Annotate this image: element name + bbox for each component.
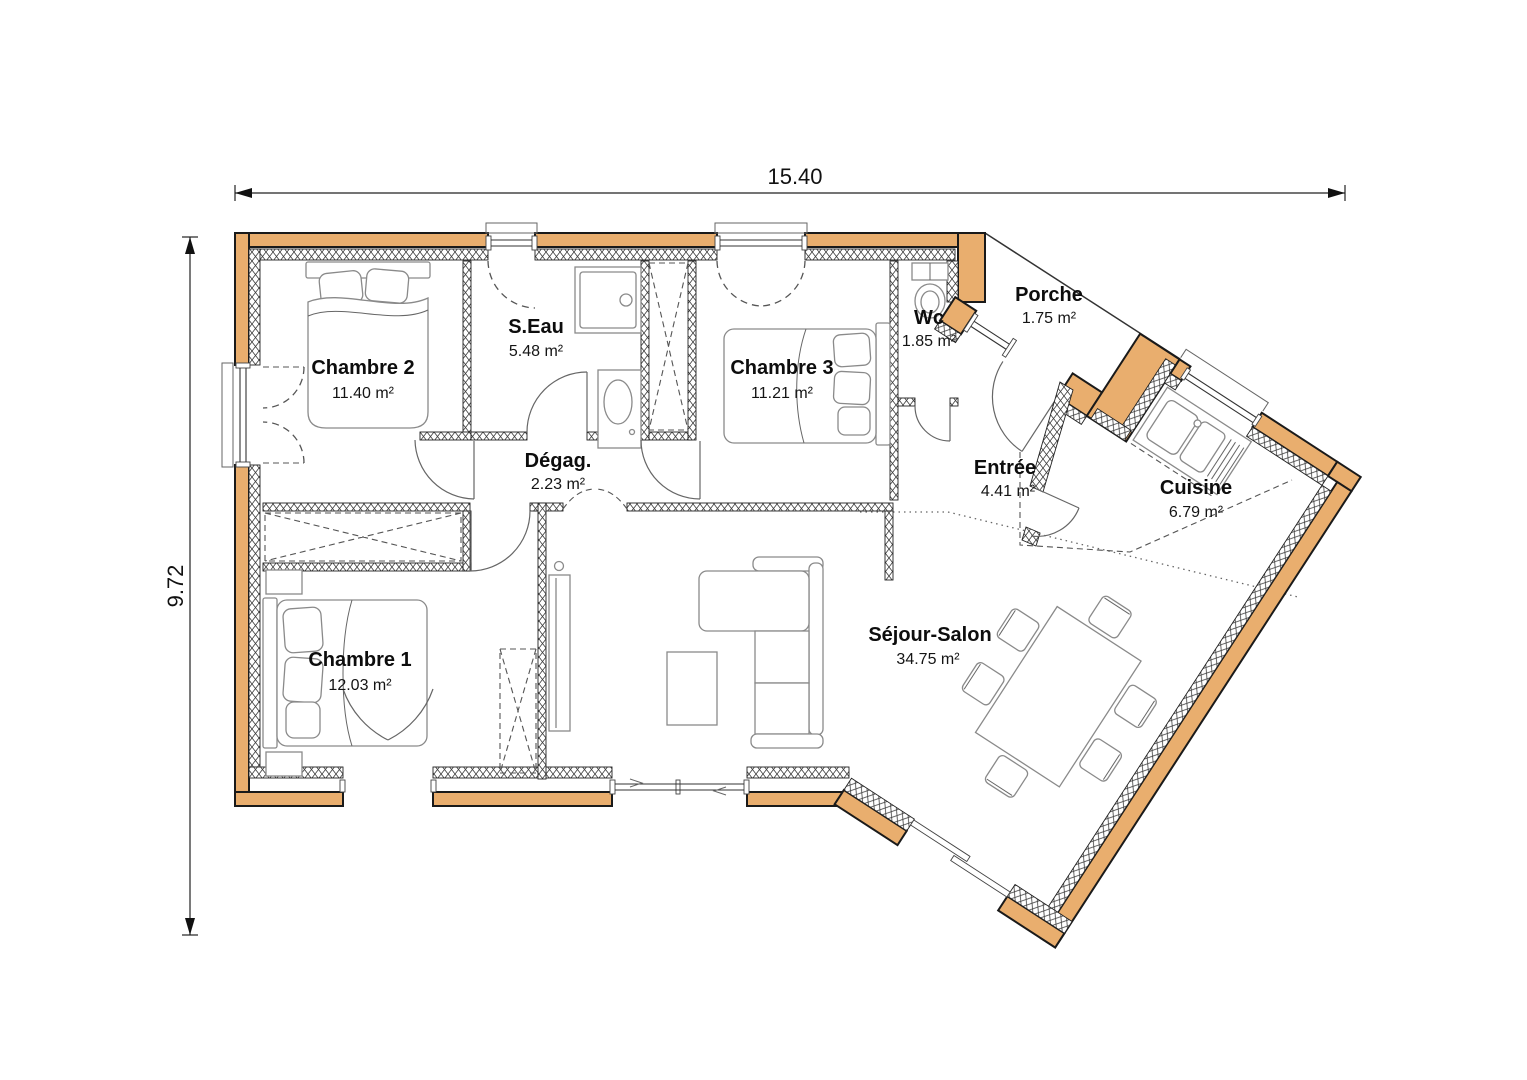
room-area-seau: 5.48 m²	[509, 343, 564, 360]
bay-sliding-door	[906, 820, 1014, 897]
room-area-wc: 1.85 m²	[902, 333, 957, 350]
room-label-chambre1: Chambre 1	[308, 649, 411, 671]
bed-chambre3	[724, 323, 890, 445]
closet-chambre1-north	[265, 513, 461, 561]
dim-arrow-right-icon	[1328, 188, 1345, 198]
openplan-boundaries	[860, 452, 1298, 597]
window-chambre2	[222, 363, 304, 467]
room-area-chambre3: 11.21 m²	[751, 385, 814, 402]
room-area-chambre1: 12.03 m²	[328, 677, 392, 694]
door-chambre3	[641, 440, 700, 499]
room-area-sejour: 34.75 m²	[896, 651, 960, 668]
bathroom-sink	[598, 370, 641, 448]
room-area-degag: 2.23 m²	[531, 476, 586, 493]
dimension-width-label: 15.40	[767, 164, 822, 189]
entry-sidelight-window	[964, 313, 1017, 357]
dim-arrow-up-icon	[185, 237, 195, 254]
bed-chambre2	[306, 262, 430, 428]
furniture	[263, 262, 948, 776]
room-label-wc: Wc	[914, 307, 944, 329]
dimension-top: 15.40	[235, 164, 1345, 201]
room-label-sejour: Séjour-Salon	[868, 624, 991, 646]
room-label-cuisine: Cuisine	[1160, 477, 1232, 499]
room-label-chambre3: Chambre 3	[730, 357, 833, 379]
door-wc	[915, 406, 950, 441]
room-label-entree: Entrée	[974, 457, 1036, 479]
window-sejour-bottom	[610, 779, 749, 795]
door-seau	[527, 372, 587, 432]
room-label-degag: Dégag.	[525, 450, 592, 472]
bed-chambre1	[263, 570, 427, 776]
floor-plan-page: 15.40 9.72	[0, 0, 1527, 1080]
window-chambre3	[715, 223, 807, 306]
dimension-left: 9.72	[163, 237, 198, 935]
closet-chambre1-east	[500, 649, 536, 773]
window-seau	[486, 223, 537, 308]
room-label-porche: Porche	[1015, 284, 1083, 306]
room-area-porche: 1.75 m²	[1022, 310, 1077, 327]
dim-arrow-left-icon	[235, 188, 252, 198]
sideboard	[549, 562, 570, 732]
door-chambre1	[470, 511, 530, 571]
room-label-chambre2: Chambre 2	[311, 357, 414, 379]
room-area-entree: 4.41 m²	[981, 483, 1036, 500]
door-chambre2	[415, 440, 474, 499]
closet-hall	[649, 263, 688, 430]
floor-plan-drawing: 15.40 9.72	[0, 0, 1527, 1080]
room-area-cuisine: 6.79 m²	[1169, 504, 1224, 521]
room-label-seau: S.Eau	[508, 316, 564, 338]
shower	[575, 267, 641, 333]
dimension-height-label: 9.72	[163, 565, 188, 608]
room-area-chambre2: 11.40 m²	[332, 385, 395, 402]
coffee-table	[667, 652, 717, 725]
dim-arrow-down-icon	[185, 918, 195, 935]
